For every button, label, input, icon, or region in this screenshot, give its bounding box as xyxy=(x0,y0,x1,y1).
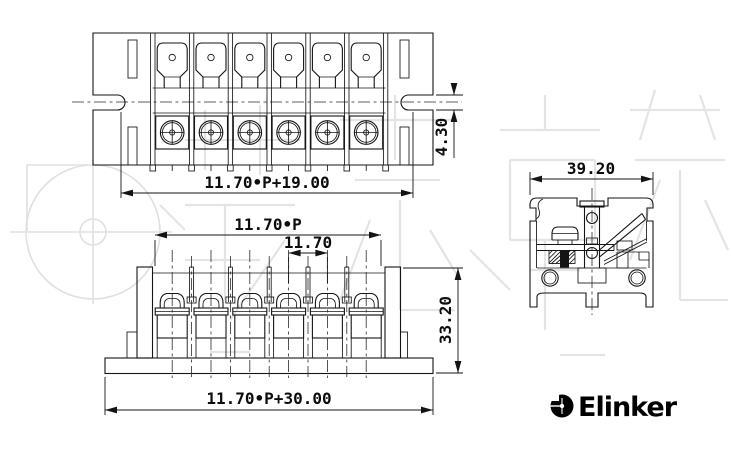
terminal-pole xyxy=(311,43,344,171)
elinker-logo-icon xyxy=(548,394,574,418)
plan-view xyxy=(72,33,462,171)
separator-wall xyxy=(150,33,156,171)
terminal-pole xyxy=(350,43,383,171)
logo: Elinker xyxy=(548,392,678,423)
terminal-screw-unit xyxy=(155,250,189,378)
end-plate-detail xyxy=(128,40,137,78)
side-view xyxy=(530,188,653,315)
drawing-page: 11.70•P+19.00 4.30 11.70•P xyxy=(0,0,731,450)
dim-label-plan-width: 11.70•P+19.00 xyxy=(204,173,329,192)
quick-connect-tab xyxy=(600,214,648,265)
technical-drawing: 11.70•P+19.00 4.30 11.70•P xyxy=(0,0,731,450)
dim-label-front-height: 33.20 xyxy=(436,296,455,344)
dim-label-front-pitch-total: 11.70•P xyxy=(234,215,301,234)
terminal-screw-unit xyxy=(233,250,267,378)
separator-post xyxy=(265,256,274,377)
dimension-side-width: 39.20 xyxy=(530,159,653,195)
watermark-logo-mark xyxy=(10,160,172,304)
logo-text: Elinker xyxy=(578,392,678,423)
dimension-front-height: 33.20 xyxy=(403,268,463,373)
right-end-wall xyxy=(385,267,401,358)
dim-label-slot-height: 4.30 xyxy=(432,118,451,157)
terminal-screw-unit xyxy=(349,250,383,378)
separator-wall xyxy=(266,33,272,171)
terminal-pole xyxy=(233,43,266,171)
terminal-pole xyxy=(156,43,189,171)
dimension-slot-height: 4.30 xyxy=(432,83,463,158)
dim-label-front-base-width: 11.70•P+30.00 xyxy=(206,389,331,408)
separator-post xyxy=(187,256,196,377)
separator-post xyxy=(304,256,313,377)
terminal-pole xyxy=(272,43,305,171)
dim-label-side-width: 39.20 xyxy=(567,159,615,178)
terminal-screw-unit xyxy=(194,250,228,378)
dim-label-front-pitch: 11.70 xyxy=(284,233,332,252)
dimension-front-base-width: 11.70•P+30.00 xyxy=(105,377,433,415)
terminal-pole xyxy=(195,43,228,171)
front-view xyxy=(105,250,433,378)
screw-shaft xyxy=(560,251,569,268)
